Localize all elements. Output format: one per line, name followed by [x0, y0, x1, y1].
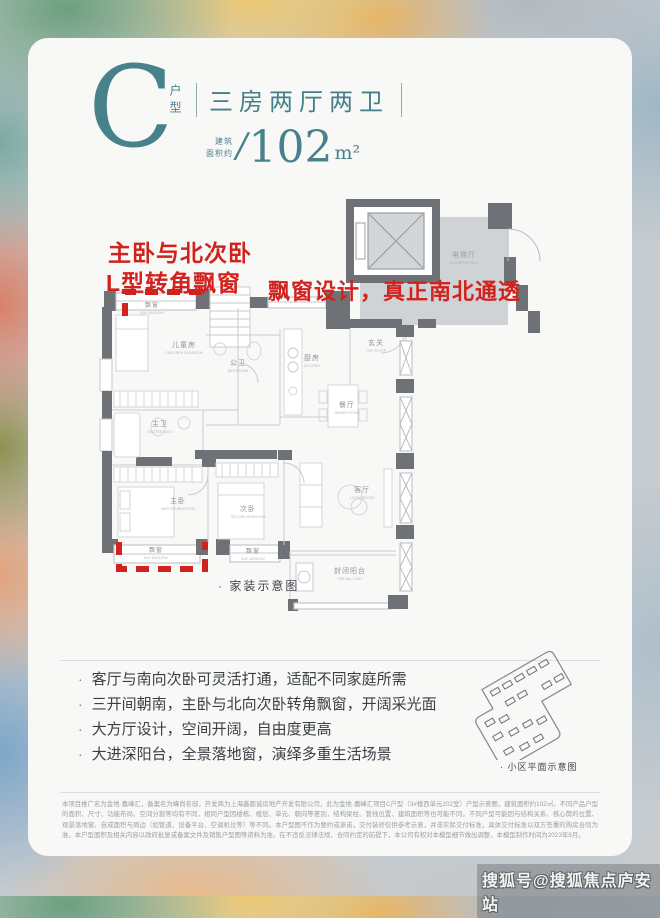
room-label-en: MASTER BEDROOM [161, 507, 196, 511]
room-label-cn: 儿童房 [172, 340, 196, 349]
feature-item: ·三开间朝南，主卧与北向次卧转角飘窗，开阔采光面 [78, 697, 468, 712]
room-label-en: THE FOYER [366, 349, 387, 353]
title-divider-left [196, 83, 197, 117]
bullet-icon: · [78, 747, 83, 761]
room-label-cn: 主卧 [170, 496, 186, 505]
room-label-cn: 飘窗 [246, 547, 260, 555]
annotation-bay-window-line2: L型转角飘窗 [106, 264, 241, 298]
room-label-en: SECOND BEDROOM [231, 515, 266, 519]
room-label-en: DINING ROOM [335, 411, 360, 415]
area-unit: m² [334, 142, 360, 164]
plan-caption: · 家装示意图 [218, 577, 299, 594]
plan-title: 三房两厅两卫 [209, 82, 389, 117]
disclaimer-text: 本项目推广名为金地·嘉峰汇，备案名为峰尚名邸，开发商为上海鑫都诚房地产开发有限公… [62, 800, 598, 842]
title-divider-right [401, 83, 402, 117]
annotation-bay-window-line1: 主卧与北次卧 [108, 234, 252, 268]
area-slash: / [236, 126, 247, 166]
unit-letter: C [88, 52, 174, 164]
room-label-en: THE BALCONY [337, 577, 363, 581]
room-label-en: MASTER BATH [147, 430, 173, 434]
room-label-cn: 主卫 [152, 419, 168, 428]
room-label-cn: 飘窗 [149, 546, 163, 554]
area-prefix: 建筑面积约 [206, 136, 233, 160]
room-label-cn: 公卫 [230, 359, 246, 367]
room-label-en: BAY WINDOW [144, 556, 168, 560]
plan-title-row: 三房两厅两卫 [196, 82, 402, 117]
bullet-icon: · [78, 672, 83, 686]
room-label-en: LIVING ROOM [350, 496, 374, 500]
room-label-cn: 客厅 [354, 485, 370, 494]
annotation-north-south: 飘窗设计，真正南北通透 [268, 274, 521, 306]
room-label-cn: 玄关 [368, 338, 384, 347]
divider-bottom [60, 792, 600, 793]
siteplan-caption: · 小区平面示意图 [500, 760, 578, 773]
siteplan-svg [458, 648, 608, 760]
siteplan [458, 648, 608, 760]
bullet-icon: · [78, 697, 83, 711]
feature-list: ·客厅与南向次卧可灵活打通，适配不同家庭所需·三开间朝南，主卧与北向次卧转角飘窗… [78, 672, 468, 772]
feature-text: 大进深阳台，全景落地窗，演绎多重生活场景 [92, 747, 392, 762]
feature-item: ·大方厅设计，空间开阔，自由度更高 [78, 722, 468, 737]
feature-item: ·客厅与南向次卧可灵活打通，适配不同家庭所需 [78, 672, 468, 687]
feature-text: 三开间朝南，主卧与北向次卧转角飘窗，开阔采光面 [92, 697, 437, 712]
room-label-en: BAY WINDOW [241, 557, 265, 561]
room-label-cn: 厨房 [304, 353, 320, 362]
room-label-en: KITCHEN [304, 364, 320, 368]
room-label-cn: 餐厅 [339, 400, 355, 409]
area-value: 102 [248, 129, 332, 166]
bullet-icon: · [78, 722, 83, 736]
feature-text: 大方厅设计，空间开阔，自由度更高 [92, 722, 332, 737]
room-label-cn: 电梯厅 [452, 250, 476, 259]
room-label-cn: 次卧 [240, 504, 256, 513]
room-label-cn: 飘窗 [145, 301, 159, 309]
room-label-en: CHILDREN BEDROOM [165, 351, 203, 355]
room-label-cn: 封闭阳台 [334, 566, 366, 575]
room-label-en: BATHROOM [228, 369, 249, 373]
feature-text: 客厅与南向次卧可灵活打通，适配不同家庭所需 [92, 672, 407, 687]
area-row: 建筑面积约 / 102 m² [206, 126, 360, 166]
watermark: 搜狐号@搜狐焦点庐安站 [477, 864, 660, 918]
feature-item: ·大进深阳台，全景落地窗，演绎多重生活场景 [78, 747, 468, 762]
room-label-en: ELEVATOR HALL [450, 261, 479, 265]
unit-letter-label: 户型 [167, 84, 184, 118]
room-label-en: BAY WINDOW [140, 311, 164, 315]
